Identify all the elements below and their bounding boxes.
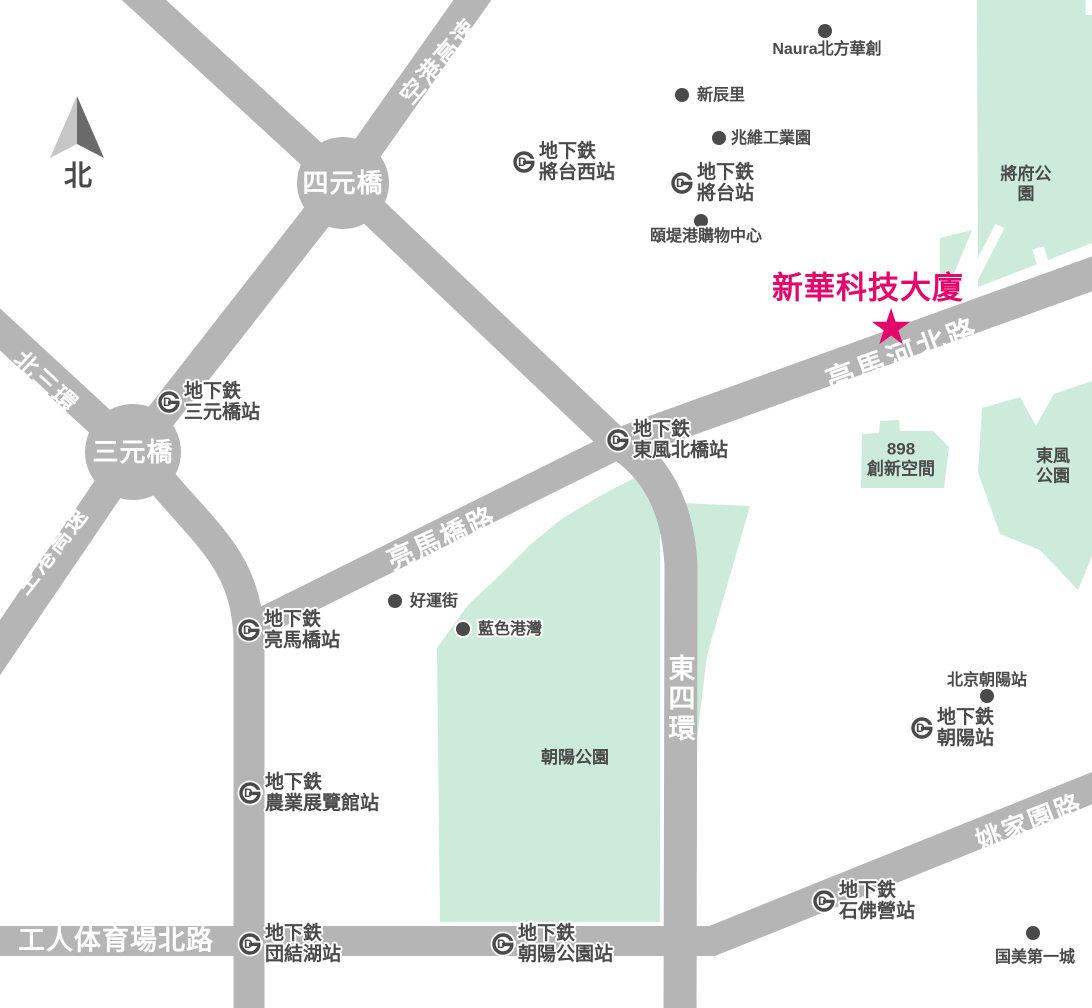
- metro-prefix: 地下鉄: [265, 923, 341, 944]
- star-icon: ★: [869, 302, 914, 352]
- road-label: 空港高速: [397, 15, 483, 109]
- metro-station: D地下鉄東風北橋站: [605, 419, 728, 462]
- metro-logo-icon: D: [237, 780, 263, 806]
- metro-prefix: 地下鉄: [184, 381, 260, 402]
- svg-text:D: D: [244, 786, 253, 800]
- metro-prefix: 地下鉄: [264, 609, 340, 630]
- north-label: 北: [64, 162, 92, 190]
- metro-prefix: 地下鉄: [265, 772, 379, 793]
- metro-station-name: 將台站: [697, 183, 754, 204]
- metro-station: D地下鉄將台站: [669, 162, 754, 205]
- metro-logo-icon: D: [909, 715, 935, 741]
- poi-dot: [818, 24, 832, 38]
- poi-dot: [980, 689, 994, 703]
- metro-station: D地下鉄農業展覽館站: [237, 772, 379, 815]
- poi-label: 北京朝陽站: [947, 673, 1027, 689]
- metro-station-label: 地下鉄団結湖站: [265, 923, 341, 966]
- park-label: 將府公園: [993, 164, 1059, 203]
- metro-station-label: 地下鉄三元橋站: [184, 381, 260, 424]
- metro-station-name: 將台西站: [539, 162, 615, 183]
- metro-station-name: 亮馬橋站: [264, 630, 340, 651]
- metro-logo-icon: D: [605, 427, 631, 453]
- metro-station-label: 地下鉄石佛營站: [839, 880, 915, 923]
- metro-station-label: 地下鉄將台西站: [539, 141, 615, 184]
- metro-prefix: 地下鉄: [937, 707, 994, 728]
- park-label: 898 創新空間: [867, 439, 935, 478]
- metro-station-label: 地下鉄東風北橋站: [633, 419, 728, 462]
- metro-station-label: 地下鉄將台站: [697, 162, 754, 205]
- metro-station-label: 地下鉄農業展覽館站: [265, 772, 379, 815]
- svg-text:D: D: [243, 623, 252, 637]
- metro-station: D地下鉄朝陽公園站: [490, 923, 613, 966]
- road-label: 亮馬橋路: [384, 503, 501, 575]
- poi-dot: [456, 622, 470, 636]
- poi-dot: [388, 594, 402, 608]
- metro-station: D地下鉄石佛營站: [811, 880, 915, 923]
- poi-dot: [675, 88, 689, 102]
- svg-text:D: D: [497, 937, 506, 951]
- metro-station-label: 地下鉄亮馬橋站: [264, 609, 340, 652]
- map-overlay: 北將府公園東風公園898 創新空間朝陽公園空港高速空港高速北三環亮馬河北路亮馬橋…: [0, 0, 1092, 1008]
- junction-label: 三元橋: [92, 439, 173, 465]
- svg-text:D: D: [676, 176, 685, 190]
- metro-logo-icon: D: [511, 149, 537, 175]
- metro-prefix: 地下鉄: [633, 419, 728, 440]
- building-title: 新華科技大廈: [772, 273, 964, 304]
- poi-label: 頤堤港購物中心: [650, 229, 762, 245]
- metro-logo-icon: D: [669, 170, 695, 196]
- metro-prefix: 地下鉄: [539, 141, 615, 162]
- svg-text:D: D: [163, 395, 172, 409]
- metro-logo-icon: D: [490, 931, 516, 957]
- metro-station-name: 朝陽站: [937, 728, 994, 749]
- metro-station-name: 朝陽公園站: [518, 944, 613, 965]
- metro-station-label: 地下鉄朝陽公園站: [518, 923, 613, 966]
- poi-label: Naura北方華創: [772, 42, 881, 58]
- poi-label: 国美第一城: [995, 950, 1075, 966]
- metro-station-name: 東風北橋站: [633, 440, 728, 461]
- svg-text:D: D: [518, 155, 527, 169]
- svg-text:D: D: [612, 433, 621, 447]
- metro-station: D地下鉄朝陽站: [909, 707, 994, 750]
- metro-prefix: 地下鉄: [839, 880, 915, 901]
- metro-logo-icon: D: [237, 931, 263, 957]
- metro-logo-icon: D: [811, 888, 837, 914]
- svg-text:D: D: [916, 721, 925, 735]
- poi-dot: [1026, 926, 1040, 940]
- poi-label: 藍色港灣: [478, 622, 542, 638]
- metro-station: D地下鉄亮馬橋站: [236, 609, 340, 652]
- metro-station-label: 地下鉄朝陽站: [937, 707, 994, 750]
- poi-label: 新辰里: [697, 88, 745, 104]
- metro-station: D地下鉄団結湖站: [237, 923, 341, 966]
- metro-station: D地下鉄將台西站: [511, 141, 615, 184]
- svg-text:D: D: [818, 894, 827, 908]
- road-label: 東四環: [666, 654, 693, 744]
- poi-dot: [694, 214, 708, 228]
- metro-station: D地下鉄三元橋站: [156, 381, 260, 424]
- road-label: 工人体育場北路: [18, 928, 214, 955]
- poi-label: 兆維工業園: [731, 131, 811, 147]
- svg-text:D: D: [244, 937, 253, 951]
- road-label: 空港高速: [11, 503, 94, 600]
- poi-dot: [712, 131, 726, 145]
- metro-logo-icon: D: [156, 389, 182, 415]
- metro-station-name: 農業展覽館站: [265, 793, 379, 814]
- metro-station-name: 団結湖站: [265, 944, 341, 965]
- metro-logo-icon: D: [236, 617, 262, 643]
- junction-label: 四元橋: [302, 170, 383, 196]
- road-label: 姚家園路: [972, 790, 1086, 854]
- park-label: 東風公園: [1034, 446, 1073, 485]
- poi-label: 好運街: [410, 594, 458, 610]
- park-label: 朝陽公園: [541, 748, 609, 768]
- road-label: 北三環: [8, 348, 81, 419]
- metro-station-name: 石佛營站: [839, 901, 915, 922]
- map-container: 北將府公園東風公園898 創新空間朝陽公園空港高速空港高速北三環亮馬河北路亮馬橋…: [0, 0, 1092, 1008]
- metro-prefix: 地下鉄: [697, 162, 754, 183]
- metro-station-name: 三元橋站: [184, 402, 260, 423]
- metro-prefix: 地下鉄: [518, 923, 613, 944]
